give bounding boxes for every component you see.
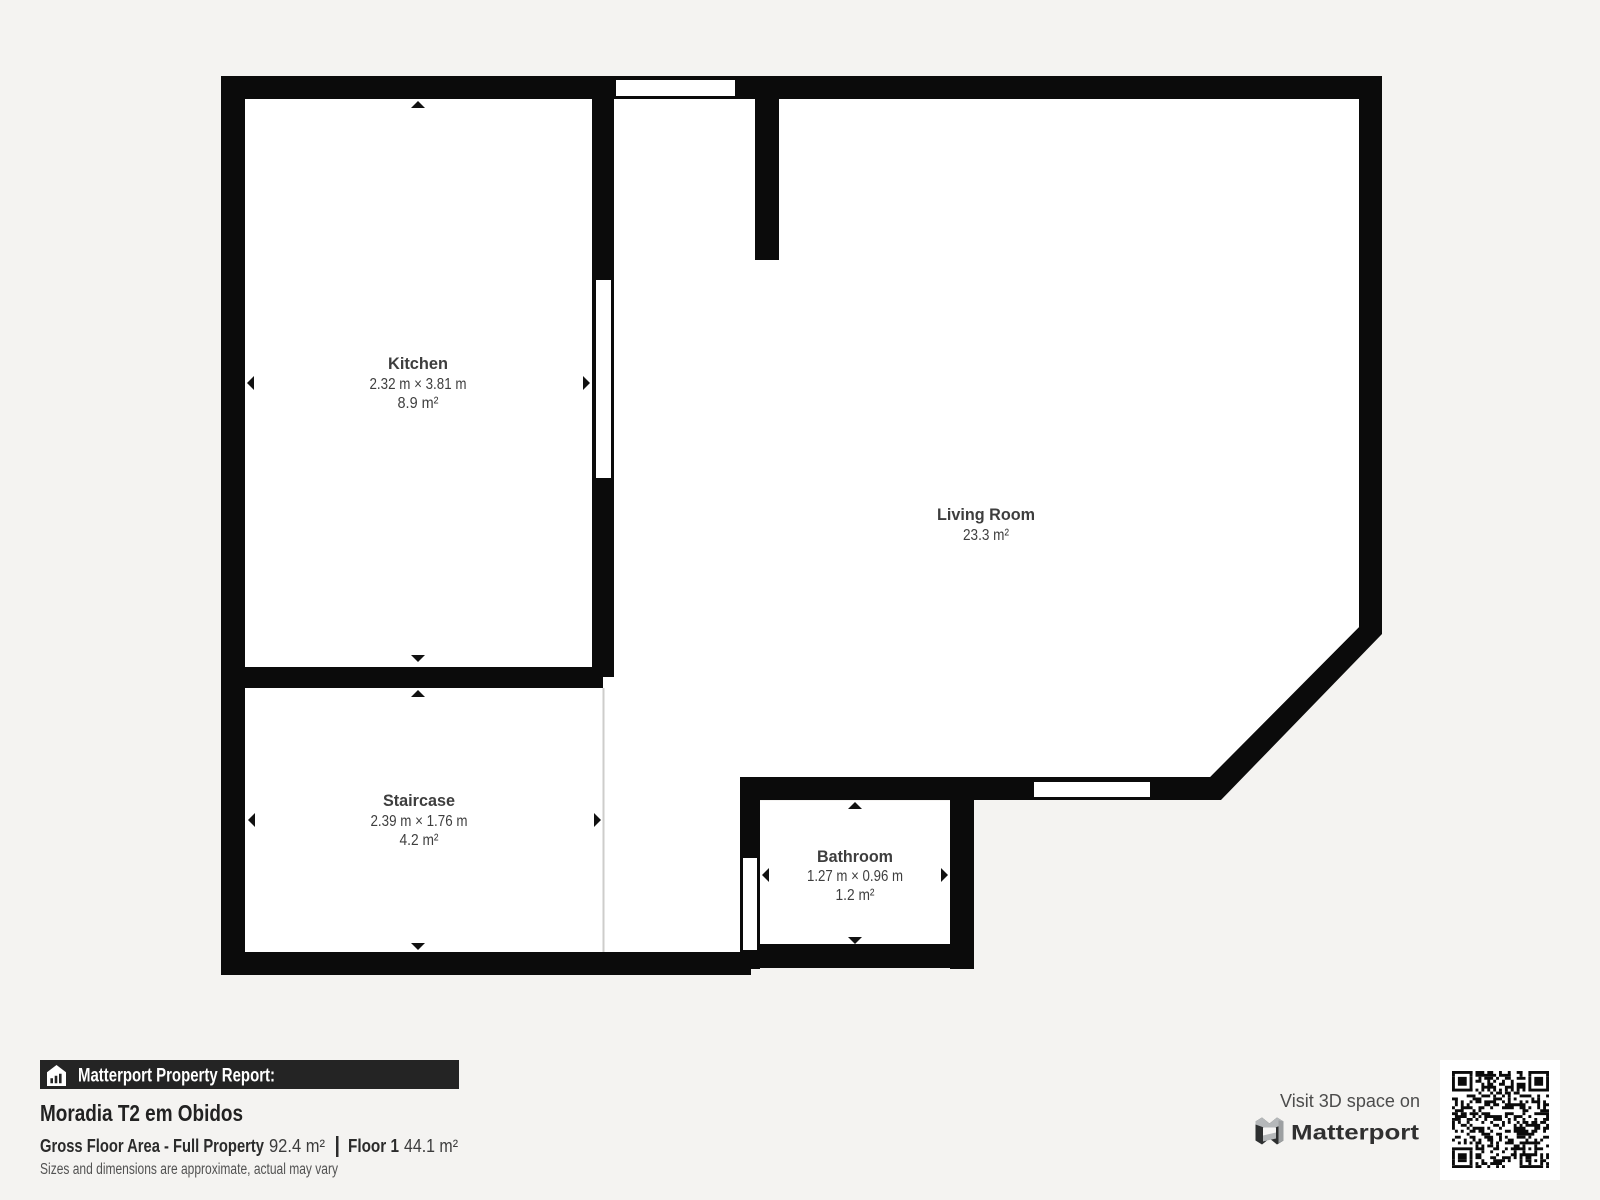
svg-text:23.3 m²: 23.3 m² xyxy=(963,527,1010,544)
svg-text:44.1 m²: 44.1 m² xyxy=(404,1136,458,1156)
svg-text:2.32 m × 3.81 m: 2.32 m × 3.81 m xyxy=(370,376,467,393)
svg-text:Sizes and dimensions are appro: Sizes and dimensions are approximate, ac… xyxy=(40,1161,338,1178)
svg-text:4.2 m²: 4.2 m² xyxy=(400,832,440,849)
svg-text:Bathroom: Bathroom xyxy=(817,847,893,866)
svg-text:Visit 3D space on: Visit 3D space on xyxy=(1280,1090,1420,1111)
svg-text:8.9 m²: 8.9 m² xyxy=(398,395,440,412)
svg-text:Kitchen: Kitchen xyxy=(388,354,448,373)
svg-text:Gross Floor Area - Full Proper: Gross Floor Area - Full Property xyxy=(40,1136,264,1156)
svg-text:Floor 1: Floor 1 xyxy=(348,1136,399,1156)
svg-text:92.4 m²: 92.4 m² xyxy=(269,1136,325,1156)
svg-text:2.39 m × 1.76 m: 2.39 m × 1.76 m xyxy=(371,813,468,830)
svg-text:1.27 m × 0.96 m: 1.27 m × 0.96 m xyxy=(807,868,903,885)
svg-text:Staircase: Staircase xyxy=(383,791,455,810)
svg-text:1.2 m²: 1.2 m² xyxy=(836,887,876,904)
svg-text:Matterport: Matterport xyxy=(1291,1121,1419,1145)
svg-text:Living Room: Living Room xyxy=(937,505,1035,524)
svg-text:Matterport Property Report:: Matterport Property Report: xyxy=(78,1066,275,1087)
svg-text:Moradia T2 em Obidos: Moradia T2 em Obidos xyxy=(40,1100,243,1126)
